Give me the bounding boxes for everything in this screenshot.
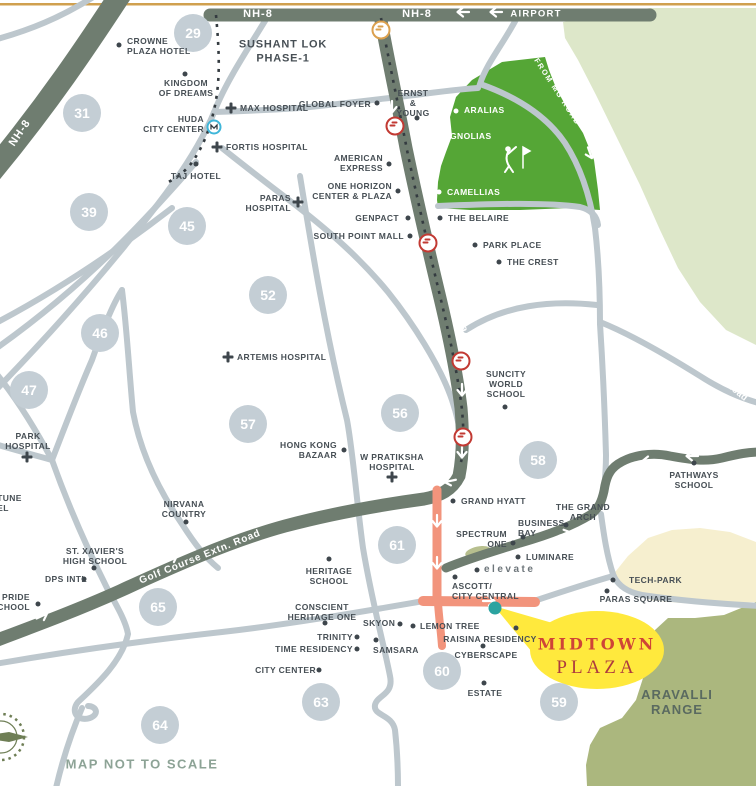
map-label: SKYON xyxy=(363,618,395,628)
map-label: GRAND HYATT xyxy=(461,496,526,506)
map-label: ESTATE xyxy=(468,688,503,698)
poi-dot xyxy=(611,578,616,583)
poi-dot xyxy=(342,448,347,453)
poi-dot xyxy=(692,461,697,466)
poi-dot xyxy=(117,43,122,48)
hospital-cross-icon xyxy=(212,142,223,153)
map-label: CAMELLIAS xyxy=(447,187,500,197)
map-label: HERITAGESCHOOL xyxy=(306,566,353,586)
map-label: DPS INTL xyxy=(45,574,87,584)
sector-circle: 63 xyxy=(302,683,340,721)
location-map: NH-8NH-8AIRPORTNH-8Golf Course RoadGolf … xyxy=(0,0,756,786)
poi-dot xyxy=(36,602,41,607)
map-label: 'S PRIDESCHOOL xyxy=(0,592,30,612)
map-label: SUNCITYWORLDSCHOOL xyxy=(486,369,526,399)
poi-dot xyxy=(605,589,610,594)
poi-dot xyxy=(514,626,519,631)
map-label: MAGNOLIAS xyxy=(436,131,492,141)
map-label: RAISINA RESIDENCY xyxy=(443,634,536,644)
poi-dot xyxy=(438,216,443,221)
map-label: SAMSARA xyxy=(373,645,419,655)
map-label: ARTEMIS HOSPITAL xyxy=(237,352,326,362)
map-label: TECH-PARK xyxy=(629,575,682,585)
poi-dot xyxy=(184,520,189,525)
map-label: PARK PLACE xyxy=(483,240,542,250)
poi-dot xyxy=(375,101,380,106)
map-label: NIRVANACOUNTRY xyxy=(162,499,207,519)
hospital-cross-icon xyxy=(387,472,398,483)
poi-dot xyxy=(503,405,508,410)
poi-dot xyxy=(355,647,360,652)
map-label: BUSINESSBAY xyxy=(518,518,565,538)
poi-dot xyxy=(408,234,413,239)
sector-circle: 57 xyxy=(229,405,267,443)
midtown-plaza-subtitle: PLAZA xyxy=(556,657,637,679)
poi-dot xyxy=(92,566,97,571)
poi-dot xyxy=(327,557,332,562)
map-label: PARASHOSPITAL xyxy=(245,193,291,213)
metro-station-icon xyxy=(372,21,391,40)
poi-dot xyxy=(398,622,403,627)
map-label: ERNST&YOUNG xyxy=(396,88,429,118)
sector-circle: 58 xyxy=(519,441,557,479)
poi-dot xyxy=(406,216,411,221)
poi-dot xyxy=(396,189,401,194)
map-canvas: NH-8NH-8AIRPORTNH-8Golf Course RoadGolf … xyxy=(0,0,756,786)
map-label: W PRATIKSHAHOSPITAL xyxy=(360,452,424,472)
midtown-plaza-title: MIDTOWN xyxy=(538,636,657,655)
metro-station-icon xyxy=(419,234,438,253)
map-label: PARAS SQUARE xyxy=(600,594,673,604)
map-label: elevate xyxy=(484,564,535,576)
poi-dot xyxy=(426,134,431,139)
poi-dot xyxy=(374,638,379,643)
poi-dot xyxy=(482,681,487,686)
sector-circle: 47 xyxy=(10,371,48,409)
poi-dot xyxy=(516,555,521,560)
poi-dot xyxy=(511,541,516,546)
map-label: KINGDOMOF DREAMS xyxy=(159,78,214,98)
hospital-cross-icon xyxy=(223,352,234,363)
road-label: NH-8 xyxy=(243,8,273,20)
poi-dot xyxy=(183,72,188,77)
map-label: TIME RESIDENCY xyxy=(275,644,353,654)
map-scale-note: MAP NOT TO SCALE xyxy=(66,756,219,771)
poi-dot xyxy=(317,668,322,673)
road-label: NH-8 xyxy=(402,8,432,20)
map-label: HONG KONGBAZAAR xyxy=(280,440,337,460)
poi-dot xyxy=(194,162,199,167)
map-label: THE CREST xyxy=(507,257,559,267)
map-label: PATHWAYSSCHOOL xyxy=(669,470,718,490)
metro-station-icon xyxy=(386,117,405,136)
sector-circle: 45 xyxy=(168,207,206,245)
poi-dot xyxy=(454,109,459,114)
poi-dot xyxy=(481,644,486,649)
map-label: THE BELAIRE xyxy=(448,213,509,223)
map-label: CROWNEPLAZA HOTEL xyxy=(127,36,191,56)
sector-circle: 31 xyxy=(63,94,101,132)
map-label: ONE HORIZONCENTER & PLAZA xyxy=(312,181,392,201)
map-label: LEMON TREE xyxy=(420,621,480,631)
sector-circle: 52 xyxy=(249,276,287,314)
poi-dot xyxy=(497,260,502,265)
sector-circle: 56 xyxy=(381,394,419,432)
map-label: SUSHANT LOKPHASE-1 xyxy=(239,38,327,66)
poi-dot xyxy=(355,635,360,640)
hospital-cross-icon xyxy=(293,197,304,208)
huda-metro-icon xyxy=(208,121,221,134)
sector-circle: 65 xyxy=(139,588,177,626)
map-label: ASCOTT/CITY CENTRAL xyxy=(452,581,519,601)
road-label: AIRPORT xyxy=(510,9,561,20)
midtown-plaza-location-dot xyxy=(489,602,502,615)
poi-dot xyxy=(451,499,456,504)
poi-dot xyxy=(411,624,416,629)
map-label: HUDACITY CENTER xyxy=(143,114,204,134)
map-label: TAJ HOTEL xyxy=(171,171,221,181)
sector-circle: 59 xyxy=(540,683,578,721)
map-label: ARALIAS xyxy=(464,105,505,115)
poi-dot xyxy=(437,190,442,195)
sector-circle: 46 xyxy=(81,314,119,352)
map-label: FORTUNEHOTEL xyxy=(0,493,22,513)
map-label: CYBERSCAPE xyxy=(454,650,517,660)
road-label: Golf Course Extn. Road xyxy=(138,528,263,587)
map-label: AMERICANEXPRESS xyxy=(334,153,383,173)
map-label: CONSCIENTHERITAGE ONE xyxy=(288,602,357,622)
map-label: PARKHOSPITAL xyxy=(5,431,51,451)
poi-dot xyxy=(473,243,478,248)
compass-icon xyxy=(0,714,28,760)
poi-dot xyxy=(475,568,480,573)
poi-dot xyxy=(453,575,458,580)
poi-dot xyxy=(387,162,392,167)
map-label: ST. XAVIER'SHIGH SCHOOL xyxy=(63,546,127,566)
hospital-cross-icon xyxy=(22,452,33,463)
sector-circle: 39 xyxy=(70,193,108,231)
metro-station-icon xyxy=(454,428,473,447)
metro-station-icon xyxy=(452,352,471,371)
map-label: TRINITY xyxy=(317,632,353,642)
sector-circle: 61 xyxy=(378,526,416,564)
map-label: SPECTRUMONE xyxy=(456,529,507,549)
sector-circle: 64 xyxy=(141,706,179,744)
map-label: SOUTH POINT MALL xyxy=(314,231,404,241)
map-label: LUMINARE xyxy=(526,552,574,562)
map-label: FORTIS HOSPITAL xyxy=(226,142,308,152)
hospital-cross-icon xyxy=(226,103,237,114)
aravalli-range-label: ARAVALLIRANGE xyxy=(641,688,713,718)
map-label: CITY CENTER xyxy=(255,665,316,675)
map-label: GLOBAL FOYER xyxy=(299,99,371,109)
map-label: GENPACT xyxy=(355,213,399,223)
